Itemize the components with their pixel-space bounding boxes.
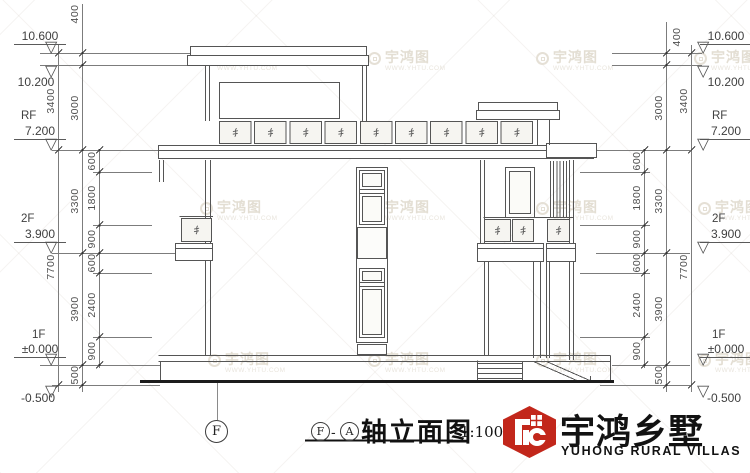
dim-label: 500 [653, 365, 665, 384]
level-marker-icon: ▽ [697, 240, 709, 256]
stair-bulkhead [188, 47, 369, 122]
dim-label: 3400 [45, 88, 57, 113]
dim-label: 900 [631, 341, 643, 360]
dim-label: 600 [631, 151, 643, 170]
dim-label: 3400 [678, 88, 690, 113]
right-wing-lower [485, 262, 574, 361]
level-marker-floor: RF [21, 110, 36, 122]
level-marker-icon: ▽ [45, 240, 57, 256]
drawing-title: 轴立面图 [361, 412, 473, 449]
dim-label: 3000 [69, 95, 81, 120]
dim-label: 3900 [653, 296, 665, 321]
elevation-sheet: 宇鸿图WWW.YHTU.COM 宇鸿图WWW.YHTU.COM 宇鸿图WWW.Y… [0, 0, 750, 473]
level-marker-icon: ▽ [697, 137, 709, 153]
level-marker-value: 7.200 [14, 124, 66, 140]
logo-name-en: YUHONG RURAL VILLAS [561, 444, 741, 458]
right-wing-upper [478, 160, 576, 262]
drawing-scale: 1:100 [460, 423, 503, 441]
dim-label: 3300 [653, 188, 665, 213]
dim-label: 3300 [69, 188, 81, 213]
title-axis-separator: - [331, 424, 336, 440]
level-marker-floor: 2F [712, 213, 725, 225]
level-marker-icon: ▽ [697, 64, 709, 80]
dim-label: 3900 [69, 296, 81, 321]
dim-label: 7700 [45, 254, 57, 279]
level-marker-icon: ▽ [697, 384, 709, 400]
level-marker-value: 3.900 [14, 227, 66, 243]
level-marker-value: 10.600 [14, 29, 66, 45]
level-marker-icon: ▽ [45, 384, 57, 400]
level-marker-floor: 1F [712, 329, 725, 341]
dim-label: 400 [671, 27, 683, 46]
dim-label: 900 [631, 229, 643, 248]
dim-label: 500 [69, 365, 81, 384]
level-marker-floor: 2F [21, 213, 34, 225]
axis-bubble: F [205, 420, 228, 443]
level-marker-floor: RF [712, 110, 727, 122]
level-marker-icon: ▽ [45, 40, 57, 56]
roof-parapet-railing [220, 122, 533, 144]
level-marker-icon: ▽ [697, 352, 709, 368]
level-marker-floor: 1F [32, 329, 45, 341]
level-marker-icon: ▽ [697, 40, 709, 56]
dim-label: 1800 [631, 185, 643, 210]
stair-window [357, 168, 388, 355]
entrance-steps [478, 361, 592, 382]
base-plinth [159, 356, 611, 382]
title-axis-bubble-start: F [311, 422, 330, 441]
left-balcony [176, 217, 214, 261]
dim-label: 600 [86, 151, 98, 170]
level-marker-icon: ▽ [45, 137, 57, 153]
title-axis-bubble-end: A [340, 422, 359, 441]
dim-label: 7700 [678, 254, 690, 279]
dim-label: 2400 [86, 292, 98, 317]
dim-label: 400 [69, 4, 81, 23]
dim-label: 3000 [653, 95, 665, 120]
louver-screen [551, 161, 567, 217]
dim-label: 900 [86, 341, 98, 360]
building-outline [159, 47, 611, 421]
level-marker-value: ±0.000 [14, 342, 66, 358]
level-marker-icon: ▽ [45, 352, 57, 368]
roof-slab-band [159, 144, 597, 159]
dim-label: 900 [86, 229, 98, 248]
dim-label: 600 [631, 253, 643, 272]
dim-label: 600 [86, 253, 98, 272]
dim-label: 2400 [631, 292, 643, 317]
dim-label: 1800 [86, 185, 98, 210]
level-marker-icon: ▽ [45, 64, 57, 80]
